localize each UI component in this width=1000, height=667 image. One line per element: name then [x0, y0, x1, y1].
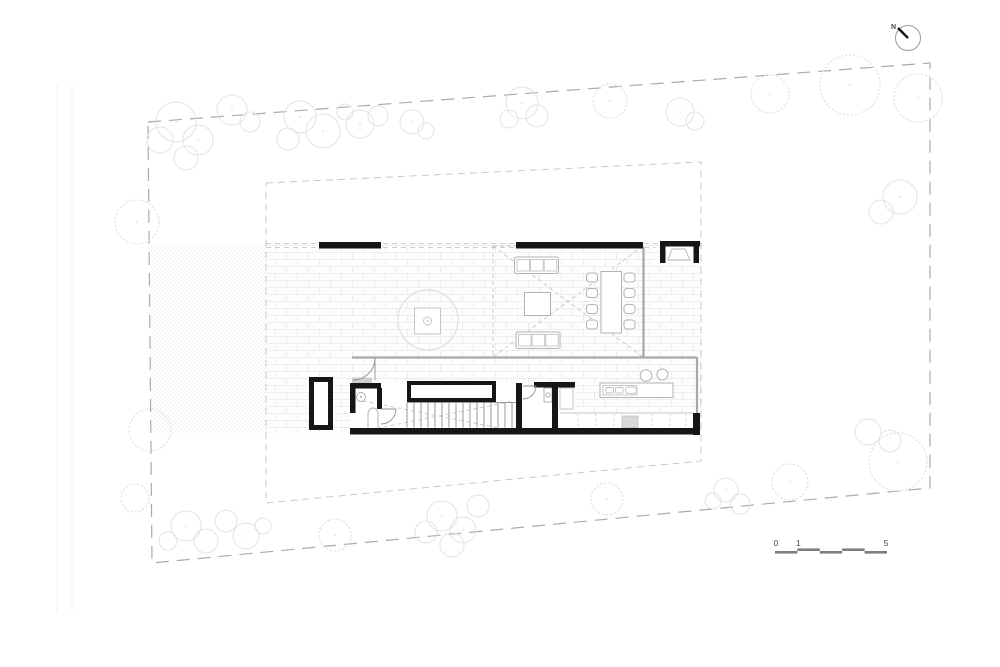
- tree-icon: [337, 104, 388, 138]
- tree-icon: [115, 200, 159, 244]
- scale-label-1: 1: [796, 538, 801, 548]
- street-edge-lines: [57, 85, 72, 612]
- sofa: [515, 257, 559, 274]
- tree-icon: [855, 419, 927, 491]
- tree-icon: [751, 75, 789, 113]
- dining-table: [601, 272, 622, 334]
- tree-icon: [593, 84, 627, 118]
- scale-label-5: 5: [884, 538, 889, 548]
- tree-icon: [705, 478, 750, 514]
- tree-icon: [772, 464, 808, 500]
- sofa: [516, 332, 560, 349]
- sink: [640, 370, 652, 382]
- scale-bar: 0 1 5: [774, 538, 889, 554]
- refrigerator: [560, 388, 573, 409]
- coffee-table: [525, 293, 551, 316]
- front-yard-gravel: [151, 243, 266, 433]
- tree-icon: [121, 484, 149, 512]
- tree-icon: [415, 495, 489, 557]
- dishwasher: [622, 416, 638, 428]
- tree-icon: [820, 55, 880, 115]
- north-label: N: [891, 24, 896, 31]
- floor-plan-canvas: N 0 1 5: [0, 0, 1000, 667]
- tree-icon: [869, 180, 917, 224]
- tree-icon: [319, 519, 351, 551]
- tree-icon: [159, 510, 271, 553]
- sink: [657, 369, 668, 380]
- toilet: [368, 408, 378, 427]
- tree-icon: [666, 98, 704, 130]
- tree-icon: [400, 110, 434, 139]
- north-arrow-icon: N: [891, 24, 921, 51]
- scale-label-0: 0: [774, 538, 779, 548]
- tree-icon: [147, 102, 213, 170]
- wc-basin: [544, 388, 552, 402]
- tree-icon: [500, 87, 548, 128]
- tree-icon: [894, 74, 942, 122]
- tree-icon: [277, 101, 340, 150]
- tree-icon: [591, 483, 623, 515]
